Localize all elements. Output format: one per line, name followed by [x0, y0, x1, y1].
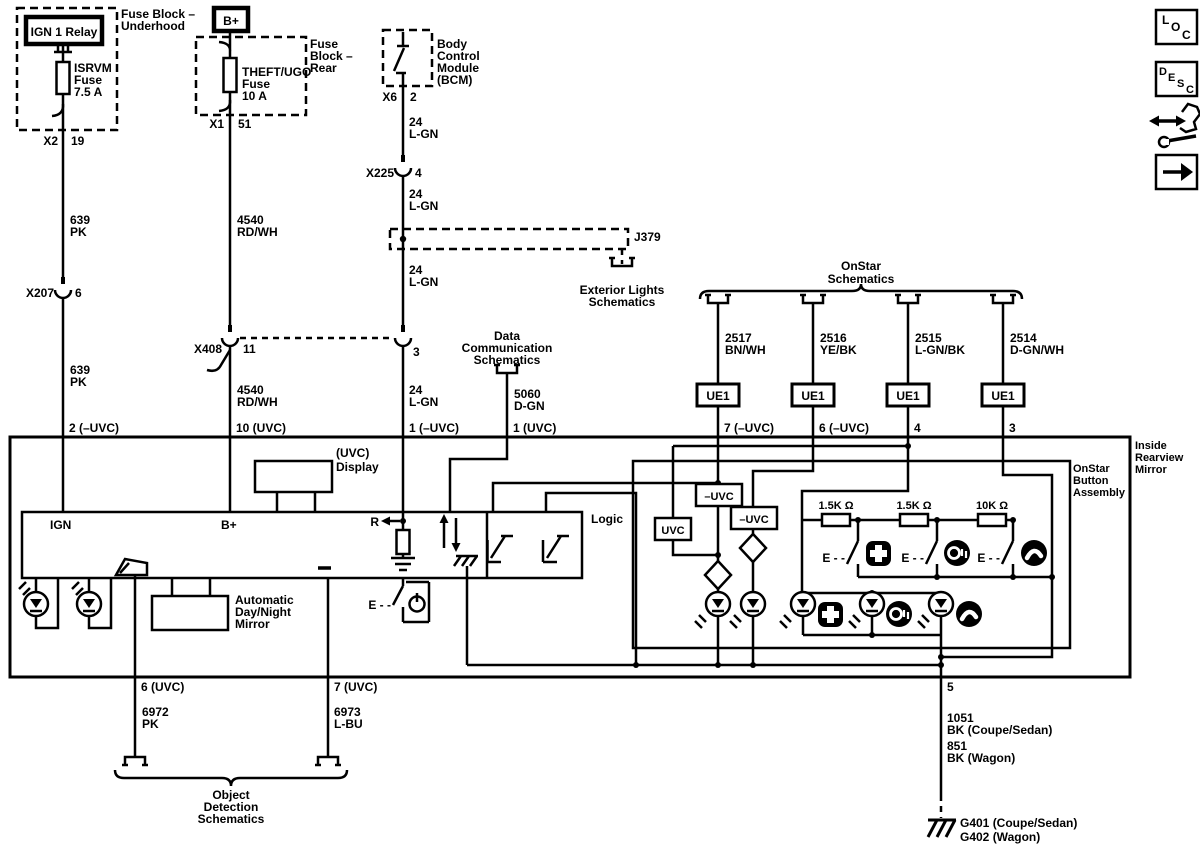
map-light-led	[19, 578, 58, 628]
svg-text:UE1: UE1	[896, 389, 920, 403]
onstar-wire-2515: 2515 L-GN/BK UE1 4	[887, 295, 965, 437]
x408-label: X408	[194, 342, 222, 356]
x2-label: X2	[43, 134, 58, 148]
svg-text:UVC: UVC	[661, 525, 684, 537]
svg-text:BK (Wagon): BK (Wagon)	[947, 751, 1015, 765]
svg-text:10K Ω: 10K Ω	[976, 500, 1008, 512]
resistor-1k5	[822, 514, 850, 526]
svg-text:7 (–UVC): 7 (–UVC)	[724, 421, 774, 435]
x1-label: X1	[209, 117, 224, 131]
svg-text:D: D	[1159, 66, 1167, 78]
object-detection-outputs: 6 (UVC) 7 (UVC) 6972 PK 6973 L-BU Object…	[115, 677, 377, 826]
svg-text:R: R	[370, 515, 379, 529]
svg-text:1.5K Ω: 1.5K Ω	[818, 500, 853, 512]
svg-text:O: O	[1171, 20, 1180, 34]
chassis-ground-icon	[454, 556, 478, 665]
svg-text:PK: PK	[70, 375, 87, 389]
svg-text:Rearview: Rearview	[1135, 452, 1184, 464]
loc-button[interactable]: L O C	[1156, 10, 1197, 44]
svg-text:S: S	[1177, 78, 1184, 90]
svg-text:6 (–UVC): 6 (–UVC)	[819, 421, 869, 435]
x225-label: X225	[366, 166, 394, 180]
svg-text:10 (UVC): 10 (UVC)	[236, 421, 286, 435]
svg-text:6 (UVC): 6 (UVC)	[141, 680, 184, 694]
svg-text:D-GN: D-GN	[514, 399, 545, 413]
onstar-button-assembly: OnStar Button Assembly –UVC –UVC UVC	[633, 437, 1126, 677]
svg-text:L-GN: L-GN	[409, 395, 438, 409]
bplus-terminal: B+	[221, 518, 237, 532]
svg-text:Display: Display	[336, 460, 379, 474]
svg-text:Button: Button	[1073, 475, 1109, 487]
svg-text:–UVC: –UVC	[704, 491, 733, 503]
x2-pin: 19	[71, 134, 85, 148]
auto-daynight-mirror: Automatic Day/Night Mirror	[152, 578, 294, 631]
button-backlight-leds	[780, 590, 982, 638]
svg-text:BN/WH: BN/WH	[725, 343, 766, 357]
svg-text:RD/WH: RD/WH	[237, 225, 278, 239]
onstar-wire-2516: 2516 YE/BK UE1 6 (–UVC)	[792, 295, 869, 437]
svg-text:Schematics: Schematics	[198, 812, 265, 826]
svg-text:Assembly: Assembly	[1073, 487, 1126, 499]
svg-text:UE1: UE1	[801, 389, 825, 403]
svg-text:L-GN: L-GN	[409, 199, 438, 213]
svg-text:5: 5	[947, 680, 954, 694]
svg-text:L-BU: L-BU	[334, 717, 363, 731]
svg-text:–UVC: –UVC	[739, 514, 768, 526]
mirror-pin-labels: 2 (–UVC) 10 (UVC) 1 (–UVC) 1 (UVC)	[69, 421, 556, 435]
x207-pin: 6	[75, 286, 82, 300]
onstar-wire-2514: 2514 D-GN/WH UE1 3	[982, 295, 1064, 437]
svg-text:G401 (Coupe/Sedan): G401 (Coupe/Sedan)	[960, 816, 1077, 830]
svg-text:7.5 A: 7.5 A	[74, 85, 103, 99]
svg-text:D-GN/WH: D-GN/WH	[1010, 343, 1064, 357]
svg-text:4: 4	[914, 421, 921, 435]
wire-639-pk: 639 PK X207 6 639 PK	[26, 213, 90, 437]
chassis-ground-icon	[928, 820, 956, 837]
ign1-relay-label: IGN 1 Relay	[31, 25, 98, 39]
resistor-10k	[978, 514, 1006, 526]
logic-label: Logic	[591, 512, 623, 526]
fuse-block-rear: B+ Fuse Block – Rear THEFT/UGO Fuse 10 A…	[196, 8, 353, 131]
ground-output: 5 1051 BK (Coupe/Sedan) 851 BK (Wagon) G…	[928, 677, 1077, 844]
onstar-schematics-label: OnStar	[841, 259, 881, 273]
mirror-title: Inside	[1135, 440, 1167, 452]
svg-text:Mirror: Mirror	[235, 617, 270, 631]
x6-pin: 2	[410, 90, 417, 104]
emergency-button-icon	[866, 541, 891, 566]
uvc-display-block	[255, 461, 332, 492]
theft-fuse-symbol	[224, 58, 237, 92]
x207-label: X207	[26, 286, 54, 300]
svg-text:UE1: UE1	[706, 389, 730, 403]
svg-text:(BCM): (BCM)	[437, 73, 472, 87]
j379-label: J379	[634, 230, 661, 244]
svg-text:L-GN: L-GN	[409, 127, 438, 141]
x408-pin: 11	[243, 342, 256, 356]
svg-text:C: C	[1186, 84, 1194, 96]
body-control-module: Body Control Module (BCM) X6 2	[382, 30, 479, 104]
svg-text:7 (UVC): 7 (UVC)	[334, 680, 377, 694]
svg-text:Schematics: Schematics	[828, 272, 895, 286]
svg-text:E - -: E - -	[977, 551, 1000, 565]
svg-text:2 (–UVC): 2 (–UVC)	[69, 421, 119, 435]
svg-text:Schematics: Schematics	[474, 353, 541, 367]
fuse-block-underhood: IGN 1 Relay Fuse Block – Underhood ISRVM…	[17, 7, 195, 280]
onstar-schematics: OnStar Schematics 2517 BN/WH UE1 7 (–UVC…	[697, 259, 1064, 437]
wire-4540-rdwh: 4540 RD/WH X408 11 4540 RD/WH	[194, 115, 393, 437]
wire-24-lgn: 24 L-GN X225 4 24 L-GN 24 L-GN 3 24 L-GN	[366, 86, 438, 437]
emergency-button-icon	[818, 602, 843, 627]
uvc-display-label: (UVC)	[336, 446, 369, 460]
j379-splice: J379 Exterior Lights Schematics	[390, 229, 665, 309]
svg-text:L-GN/BK: L-GN/BK	[915, 343, 965, 357]
wiring-diagram-page: IGN 1 Relay Fuse Block – Underhood ISRVM…	[0, 0, 1200, 844]
x6-label: X6	[382, 90, 397, 104]
x225-pin: 4	[415, 166, 422, 180]
svg-text:L: L	[1162, 13, 1169, 27]
desc-button[interactable]: D E S C	[1156, 62, 1197, 96]
x408b-pin: 3	[413, 345, 420, 359]
onstar-button-icon	[886, 601, 912, 627]
svg-text:1 (–UVC): 1 (–UVC)	[409, 421, 459, 435]
svg-text:3: 3	[1009, 421, 1016, 435]
splice-diamond	[740, 534, 766, 562]
ign-terminal: IGN	[50, 518, 71, 532]
svg-text:1.5K Ω: 1.5K Ω	[896, 500, 931, 512]
next-arrow-button[interactable]	[1156, 155, 1197, 189]
power-switch: E - -	[368, 578, 429, 622]
data-updown-arrows	[440, 514, 461, 552]
resistor-1k5	[900, 514, 928, 526]
svg-text:Underhood: Underhood	[121, 19, 185, 33]
map-light-led	[72, 578, 111, 628]
r-resistor: R	[370, 515, 415, 570]
onstar-wire-2517: 2517 BN/WH UE1 7 (–UVC)	[697, 295, 774, 437]
svg-text:BK (Coupe/Sedan): BK (Coupe/Sedan)	[947, 723, 1052, 737]
svg-text:L-GN: L-GN	[409, 275, 438, 289]
splice-diamond	[705, 561, 731, 589]
svg-text:Rear: Rear	[310, 61, 337, 75]
svg-text:G402 (Wagon): G402 (Wagon)	[960, 830, 1040, 844]
bplus-label: B+	[223, 14, 239, 28]
svg-text:Mirror: Mirror	[1135, 464, 1168, 476]
light-sensor-icon	[116, 559, 147, 575]
swap-wrench-icon[interactable]	[1149, 104, 1200, 147]
toolbar-icons: L O C D E S C	[1149, 10, 1200, 189]
svg-text:E - -: E - -	[822, 551, 845, 565]
button-resistor-network: 1.5K Ω 1.5K Ω 10K Ω E - - E - - E - -	[802, 500, 1052, 593]
phone-button-icon	[956, 601, 982, 627]
svg-text:10 A: 10 A	[242, 89, 267, 103]
inside-rearview-mirror: Inside Rearview Mirror Logic IGN B+ (UVC…	[10, 437, 1184, 677]
svg-text:C: C	[1182, 28, 1191, 42]
svg-text:E - -: E - -	[368, 598, 391, 612]
onstar-button-icon	[944, 540, 970, 566]
svg-text:UE1: UE1	[991, 389, 1015, 403]
svg-text:PK: PK	[142, 717, 159, 731]
svg-text:RD/WH: RD/WH	[237, 395, 278, 409]
svg-text:E - -: E - -	[901, 551, 924, 565]
svg-text:E: E	[1168, 72, 1175, 84]
phone-button-icon	[1021, 540, 1047, 566]
x1-pin: 51	[238, 117, 252, 131]
assembly-title: OnStar	[1073, 463, 1110, 475]
svg-text:Schematics: Schematics	[589, 295, 656, 309]
svg-text:1 (UVC): 1 (UVC)	[513, 421, 556, 435]
isrvm-fuse-symbol	[57, 62, 70, 94]
svg-text:YE/BK: YE/BK	[820, 343, 857, 357]
logic-switch-icons	[488, 536, 570, 562]
svg-text:PK: PK	[70, 225, 87, 239]
